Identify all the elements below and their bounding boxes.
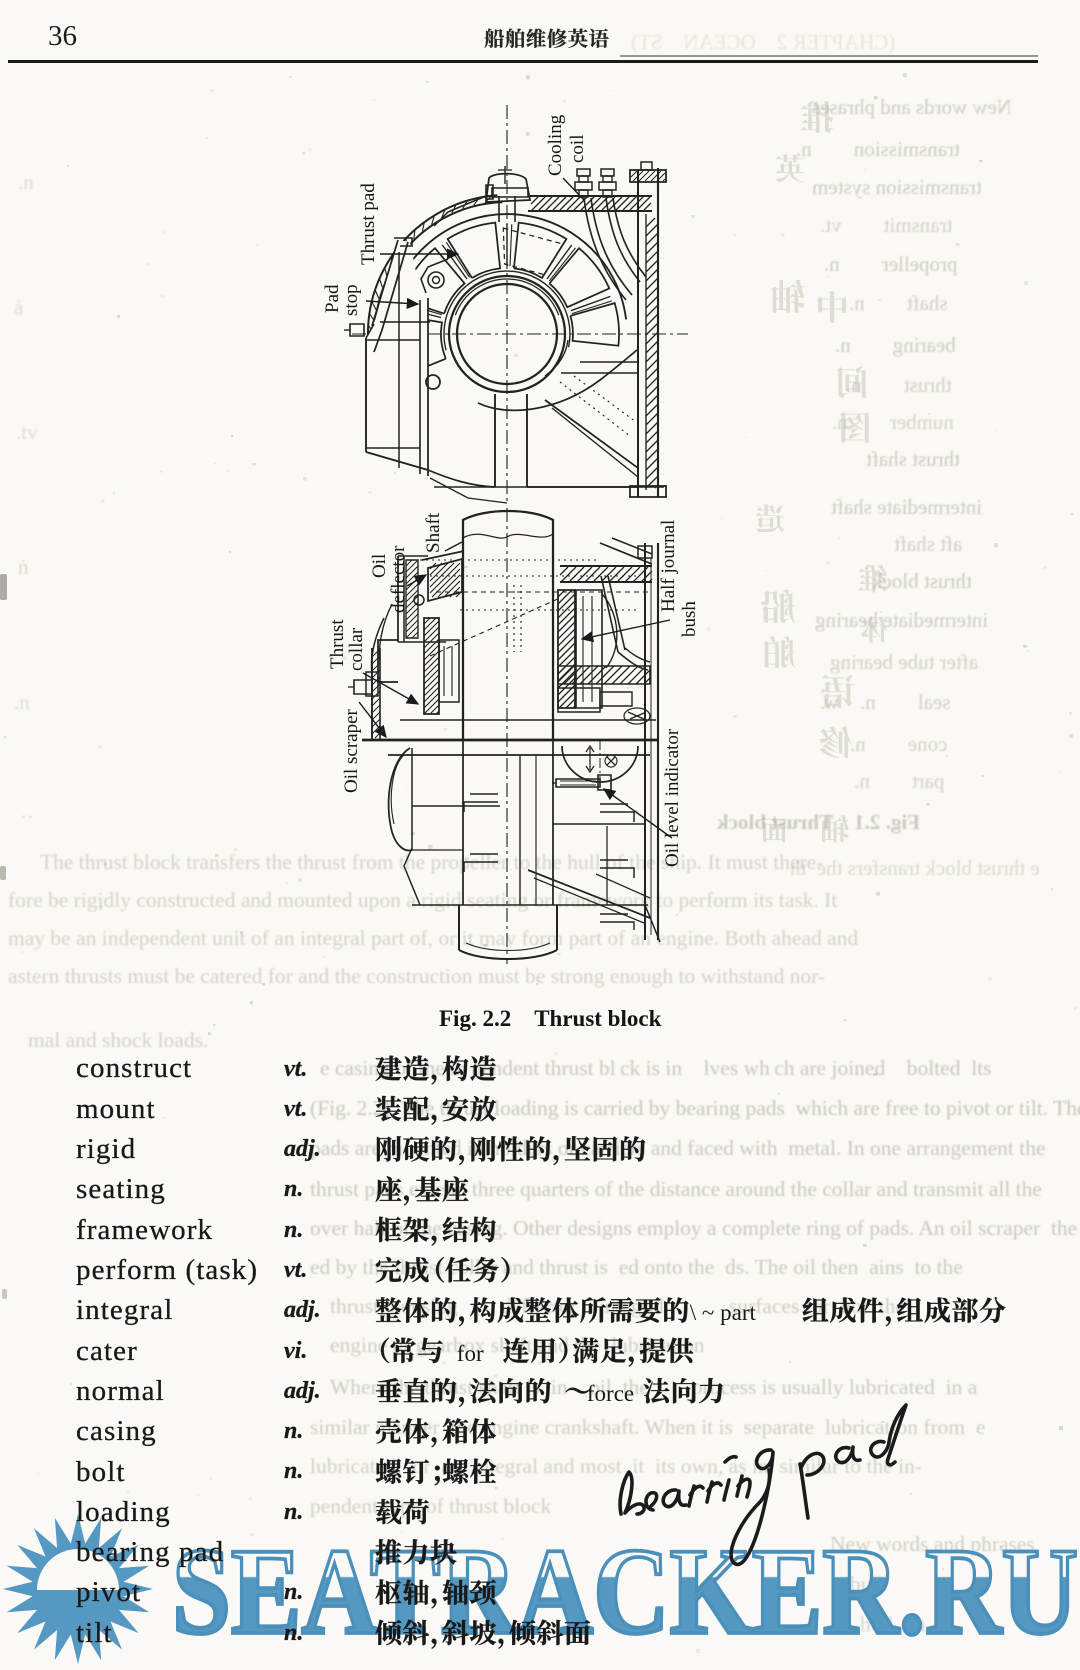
- svg-text:bush: bush: [679, 601, 700, 637]
- svg-text:coil: coil: [567, 135, 588, 164]
- svg-text:Pad: Pad: [322, 284, 343, 313]
- svg-text:deflector: deflector: [388, 545, 409, 613]
- svg-text:Thrust: Thrust: [327, 619, 348, 669]
- svg-text:Oil scraper: Oil scraper: [341, 708, 362, 793]
- svg-text:Cooling: Cooling: [545, 114, 566, 176]
- svg-text:stop: stop: [341, 284, 362, 316]
- svg-text:Oil level indicator: Oil level indicator: [662, 728, 683, 867]
- svg-text:for: for: [457, 1341, 484, 1366]
- svg-text:Fig. 2.2 Thrust block: Fig. 2.2 Thrust block: [439, 1006, 662, 1031]
- svg-text:Oil: Oil: [369, 554, 390, 578]
- svg-text:collar: collar: [346, 627, 367, 671]
- svg-text:force: force: [587, 1381, 634, 1406]
- svg-text:\ ~ part: \ ~ part: [690, 1300, 757, 1325]
- svg-text:Shaft: Shaft: [423, 512, 444, 553]
- svg-text:Thrust pad: Thrust pad: [358, 183, 379, 265]
- svg-text:Half journal: Half journal: [658, 520, 679, 612]
